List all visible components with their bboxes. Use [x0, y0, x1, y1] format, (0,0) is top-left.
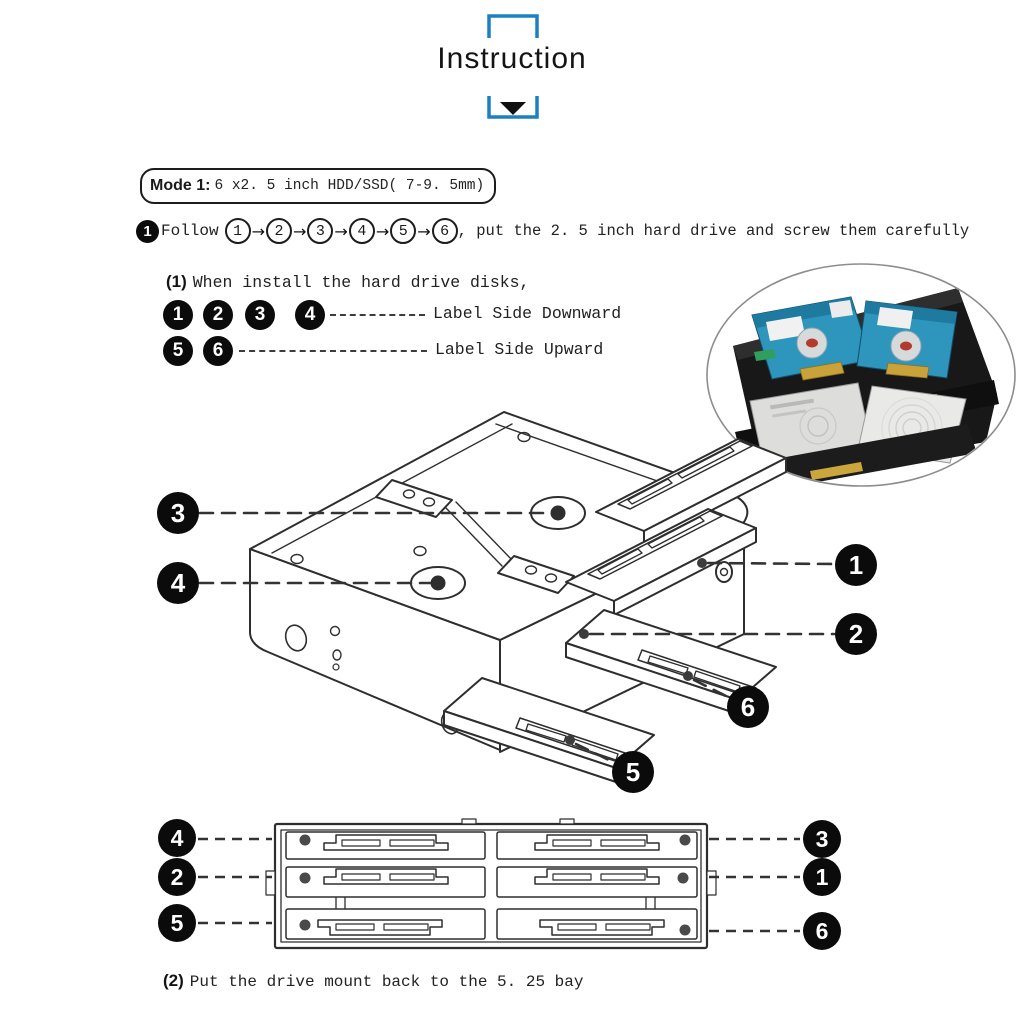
callout-badge-3: 3	[157, 492, 199, 534]
drive-badge-2: 2	[203, 300, 233, 330]
callout-badge-5: 5	[612, 751, 654, 793]
substep-1-text: When install the hard drive disks,	[193, 273, 530, 292]
mode-spec: 6 x2. 5 inch HDD/SSD( 7-9. 5mm)	[214, 178, 484, 194]
diagrams-svg	[0, 0, 1024, 1024]
mode-label: Mode 1:	[150, 177, 210, 195]
sequence-circle-4: 4	[349, 218, 375, 244]
front-callout-right-3: 3	[803, 820, 841, 858]
substep-2-text: Put the drive mount back to the 5. 25 ba…	[190, 973, 584, 991]
drive-badge-5: 5	[163, 336, 193, 366]
substep-1-number: (1)	[166, 272, 187, 291]
label-side-upward: Label Side Upward	[435, 340, 603, 359]
arrow-icon: →	[252, 222, 265, 241]
substep-2-number: (2)	[163, 971, 184, 990]
front-view-diagram	[198, 819, 800, 948]
down-triangle-icon	[500, 102, 526, 115]
dash-leader	[239, 350, 427, 352]
step-1-line: 1 Follow 1 → 2 → 3 → 4 → 5 → 6 , put the…	[136, 218, 969, 244]
front-callout-left-5: 5	[158, 904, 196, 942]
drive-badge-6: 6	[203, 336, 233, 366]
callout-badge-2: 2	[835, 613, 877, 655]
drive-badge-3: 3	[245, 300, 275, 330]
arrow-icon: →	[417, 222, 430, 241]
isometric-diagram	[200, 412, 834, 782]
substep-1-line: (1)When install the hard drive disks,	[166, 272, 529, 292]
step-1-badge: 1	[136, 220, 159, 243]
arrow-icon: →	[334, 222, 347, 241]
callout-badge-1: 1	[835, 544, 877, 586]
sequence-circle-6: 6	[432, 218, 458, 244]
sequence-circle-2: 2	[266, 218, 292, 244]
step-1-text: , put the 2. 5 inch hard drive and screw…	[458, 222, 970, 240]
mode-badge: Mode 1: 6 x2. 5 inch HDD/SSD( 7-9. 5mm)	[140, 168, 496, 204]
sequence-circle-3: 3	[307, 218, 333, 244]
label-side-downward: Label Side Downward	[433, 304, 621, 323]
step-1-verb: Follow	[161, 222, 219, 240]
callout-badge-4: 4	[157, 562, 199, 604]
label-downward-row: 1 2 3 4 Label Side Downward	[163, 300, 803, 330]
label-upward-row: 5 6 Label Side Upward	[163, 336, 803, 366]
substep-2-line: (2)Put the drive mount back to the 5. 25…	[163, 971, 583, 991]
front-callout-left-2: 2	[158, 858, 196, 896]
sequence-circle-1: 1	[225, 218, 251, 244]
arrow-icon: →	[376, 222, 389, 241]
sequence-circle-5: 5	[390, 218, 416, 244]
drive-badge-1: 1	[163, 300, 193, 330]
callout-badge-6: 6	[727, 686, 769, 728]
front-callout-left-4: 4	[158, 819, 196, 857]
front-callout-right-1: 1	[803, 858, 841, 896]
dash-leader	[330, 314, 425, 316]
arrow-icon: →	[293, 222, 306, 241]
front-callout-right-6: 6	[803, 912, 841, 950]
instruction-sheet: Instruction Mode 1: 6 x2. 5 inch HDD/SSD…	[0, 0, 1024, 1024]
drive-badge-4: 4	[295, 300, 325, 330]
page-title: Instruction	[0, 42, 1024, 76]
